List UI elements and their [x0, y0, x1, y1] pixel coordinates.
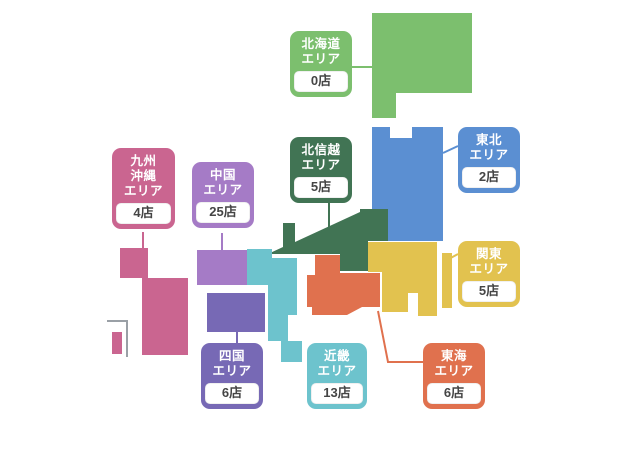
region-name-chugoku: 中国 エリア [196, 168, 250, 198]
region-shape-chugoku[interactable] [197, 250, 247, 285]
region-name-hokushinetsu: 北信越 エリア [294, 143, 348, 173]
region-label-hokushinetsu[interactable]: 北信越 エリア 5店 [290, 137, 352, 203]
region-count-chugoku: 25店 [196, 202, 250, 223]
region-count-tokai: 6店 [427, 383, 481, 404]
region-count-kyushu: 4店 [116, 203, 171, 224]
region-label-shikoku[interactable]: 四国 エリア 6店 [201, 343, 263, 409]
region-label-tohoku[interactable]: 東北 エリア 2店 [458, 127, 520, 193]
region-label-tokai[interactable]: 東海 エリア 6店 [423, 343, 485, 409]
region-name-hokkaido: 北海道 エリア [294, 37, 348, 67]
region-name-tokai: 東海 エリア [427, 349, 481, 379]
region-name-kyushu: 九州 沖縄 エリア [116, 154, 171, 199]
connector-tokai [378, 311, 423, 362]
region-shape-okinawa[interactable] [112, 332, 122, 354]
region-count-kinki: 13店 [311, 383, 363, 404]
region-count-shikoku: 6店 [205, 383, 259, 404]
region-label-hokkaido[interactable]: 北海道 エリア 0店 [290, 31, 352, 97]
region-label-kyushu[interactable]: 九州 沖縄 エリア 4店 [112, 148, 175, 229]
region-label-kanto[interactable]: 関東 エリア 5店 [458, 241, 520, 307]
region-shape-hokkaido[interactable] [372, 13, 472, 118]
region-shape-shikoku[interactable] [207, 293, 265, 332]
region-name-kinki: 近畿 エリア [311, 349, 363, 379]
region-shape-kanto-peninsula[interactable] [442, 253, 452, 308]
region-count-hokushinetsu: 5店 [294, 177, 348, 198]
region-count-kanto: 5店 [462, 281, 516, 302]
region-label-kinki[interactable]: 近畿 エリア 13店 [307, 343, 367, 409]
region-label-chugoku[interactable]: 中国 エリア 25店 [192, 162, 254, 228]
region-count-hokkaido: 0店 [294, 71, 348, 92]
region-name-kanto: 関東 エリア [462, 247, 516, 277]
region-count-tohoku: 2店 [462, 167, 516, 188]
region-name-tohoku: 東北 エリア [462, 133, 516, 163]
connector-tohoku [443, 146, 458, 153]
region-name-shikoku: 四国 エリア [205, 349, 259, 379]
region-shape-kyushu[interactable] [120, 248, 188, 355]
